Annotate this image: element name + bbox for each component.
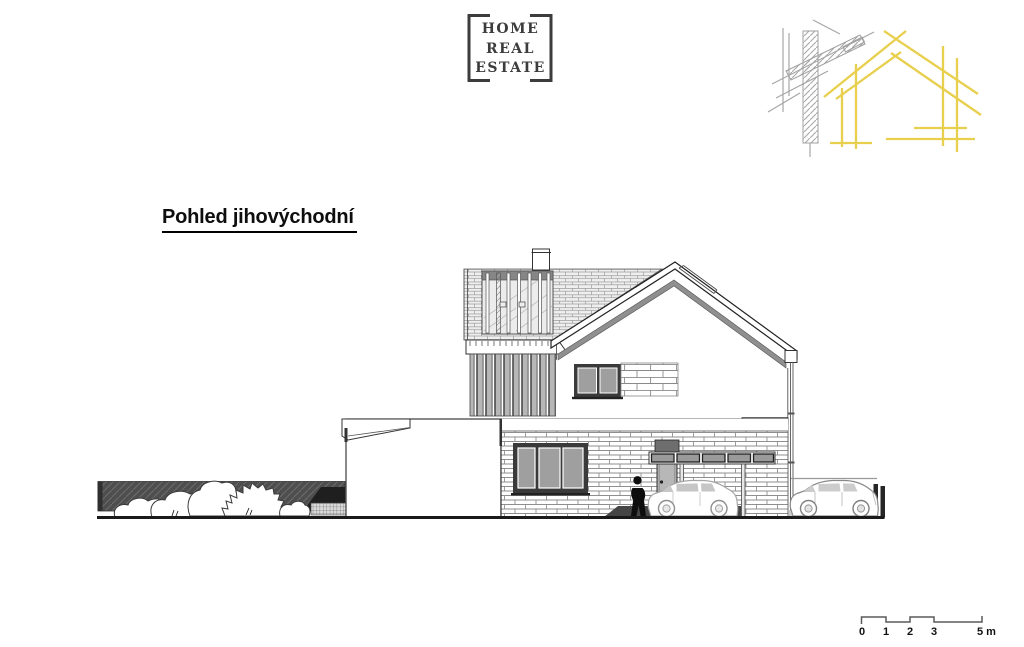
masonry-band-upper	[621, 363, 678, 396]
chimney	[532, 249, 552, 270]
brand-logo: HOME REAL ESTATE	[468, 20, 553, 79]
scale-label-4: 5 m	[977, 626, 996, 638]
annex	[342, 419, 501, 517]
logo-line-1: HOME	[468, 20, 553, 40]
brand-sketch-graphic	[768, 20, 981, 157]
balcony-louvers	[482, 271, 553, 334]
scale-bar	[862, 616, 983, 624]
drawing-title: Pohled jihovýchodní	[162, 206, 357, 233]
scale-label-2: 2	[907, 626, 913, 638]
scale-label-1: 1	[883, 626, 889, 638]
living-room-window	[511, 443, 590, 496]
page: HOME REAL ESTATE Pohled jihovýchodní 0 1…	[0, 0, 1024, 647]
logo-line-3: ESTATE	[468, 59, 553, 79]
elevation-drawing	[97, 249, 885, 518]
logo-line-2: REAL	[468, 40, 553, 60]
elevation-sheet	[0, 0, 1024, 647]
scale-label-3: 3	[931, 626, 937, 638]
upper-window	[572, 364, 623, 399]
scale-label-0: 0	[859, 626, 865, 638]
parked-car	[790, 481, 878, 517]
